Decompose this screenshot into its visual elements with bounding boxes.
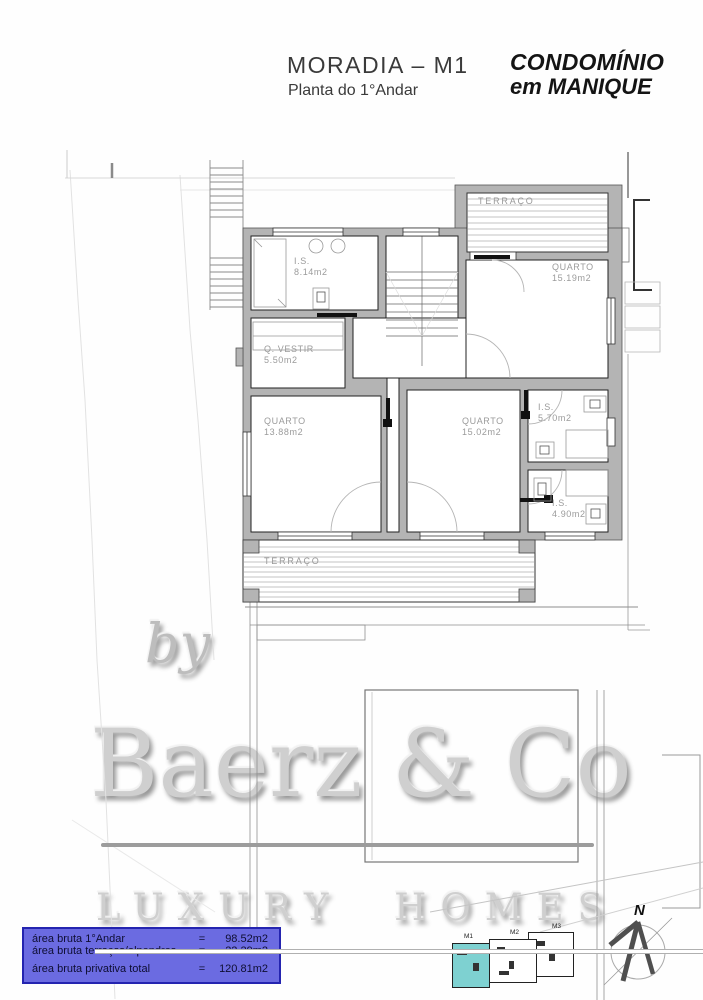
minimap-unit-detail [509,961,514,969]
terrace-bottom-deck [243,540,535,602]
minimap-label-m1: M1 [464,933,473,940]
brand-logo-line1: CONDOMÍNIO [510,50,664,75]
minimap-unit-m2 [489,939,537,983]
area-value: 98.52m2 [210,933,268,945]
area-table: área bruta 1°Andar = 98.52m2 área bruta … [22,927,281,984]
minimap-unit-detail [537,941,545,946]
area-label: área bruta privativa total [32,963,194,975]
compass-north-label: N [634,902,645,919]
room-label-is-814: I.S.8.14m2 [294,256,328,278]
minimap-unit-detail [473,963,479,971]
minimap-unit-detail [549,953,555,961]
compass-rose [598,888,703,1000]
area-row-total: área bruta privativa total = 120.81m2 [32,963,273,975]
room-label-is-570: I.S.5.70m2 [538,402,572,424]
minimap-unit-detail [499,971,509,975]
leader-line [95,949,703,954]
area-row-floor: área bruta 1°Andar = 98.52m2 [32,933,273,945]
minimap-label-m2: M2 [510,929,519,936]
minimap-label-m3: M3 [552,923,561,930]
equals-sign: = [194,933,210,945]
room-label-is-490: I.S.4.90m2 [552,498,586,520]
room-label-quarto-1388: QUARTO13.88m2 [264,416,306,438]
area-value: 120.81m2 [210,963,268,975]
room-label-quarto-1519: QUARTO15.19m2 [552,262,594,284]
room-label-q-vestir: Q. VESTIR5.50m2 [264,344,314,366]
floor-plan-drawing [0,0,703,1000]
ground-floor-lines [245,602,645,1000]
terrace-top-label: TERRAÇO [478,196,535,206]
neighbor-unit-outline [621,152,700,908]
area-label: área bruta 1°Andar [32,933,194,945]
brand-logo: CONDOMÍNIO em MANIQUE [510,50,664,99]
site-minimap: M1 M2 M3 [448,922,584,996]
equals-sign: = [194,963,210,975]
room-label-quarto-1502: QUARTO15.02m2 [462,416,504,438]
brand-logo-line2: em MANIQUE [510,75,664,99]
page: { "header": { "title": "MORADIA – M1", "… [0,0,703,1000]
terrace-bottom-label: TERRAÇO [264,556,321,566]
exterior-stair-ladder [210,160,243,310]
